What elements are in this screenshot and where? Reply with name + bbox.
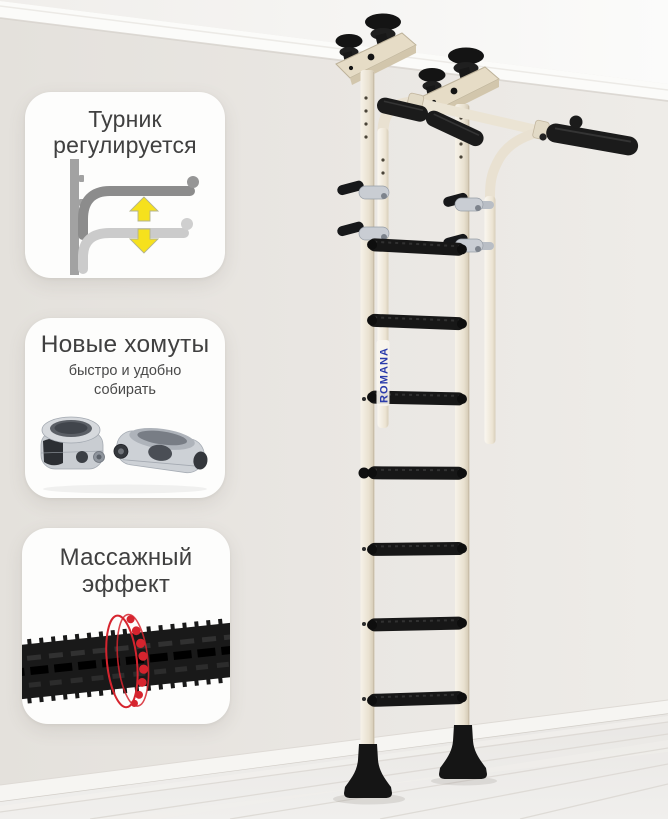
callout-massage-effect: Массажный эффект: [22, 528, 230, 724]
rung: [367, 542, 467, 556]
callout-adjustable-bar: Турник регулируется: [25, 92, 225, 278]
callout-title: Турник регулируется: [25, 92, 225, 159]
quick-assembly-clamps-icon: [33, 403, 217, 495]
long-clamp: [112, 422, 211, 475]
massage-textured-rung-icon: [22, 604, 230, 724]
callout-new-clamps: Новые хомуты быстро и удобно собирать: [25, 318, 225, 498]
brand-logo-text: ROMANA: [379, 347, 391, 403]
brand-logo: ROMANA: [377, 340, 391, 406]
right-slide-tube: [485, 196, 496, 444]
adjustable-bar-diagram-icon: [40, 159, 210, 275]
rung: [367, 466, 467, 480]
ring-clamp: [41, 417, 105, 469]
rung: [367, 616, 467, 631]
callout-title: Новые хомуты: [25, 318, 225, 358]
up-down-arrows-icon: [130, 197, 158, 253]
callout-subtitle: быстро и удобно собирать: [45, 362, 205, 398]
left-post: [359, 70, 375, 748]
callout-title: Массажный эффект: [22, 528, 230, 599]
